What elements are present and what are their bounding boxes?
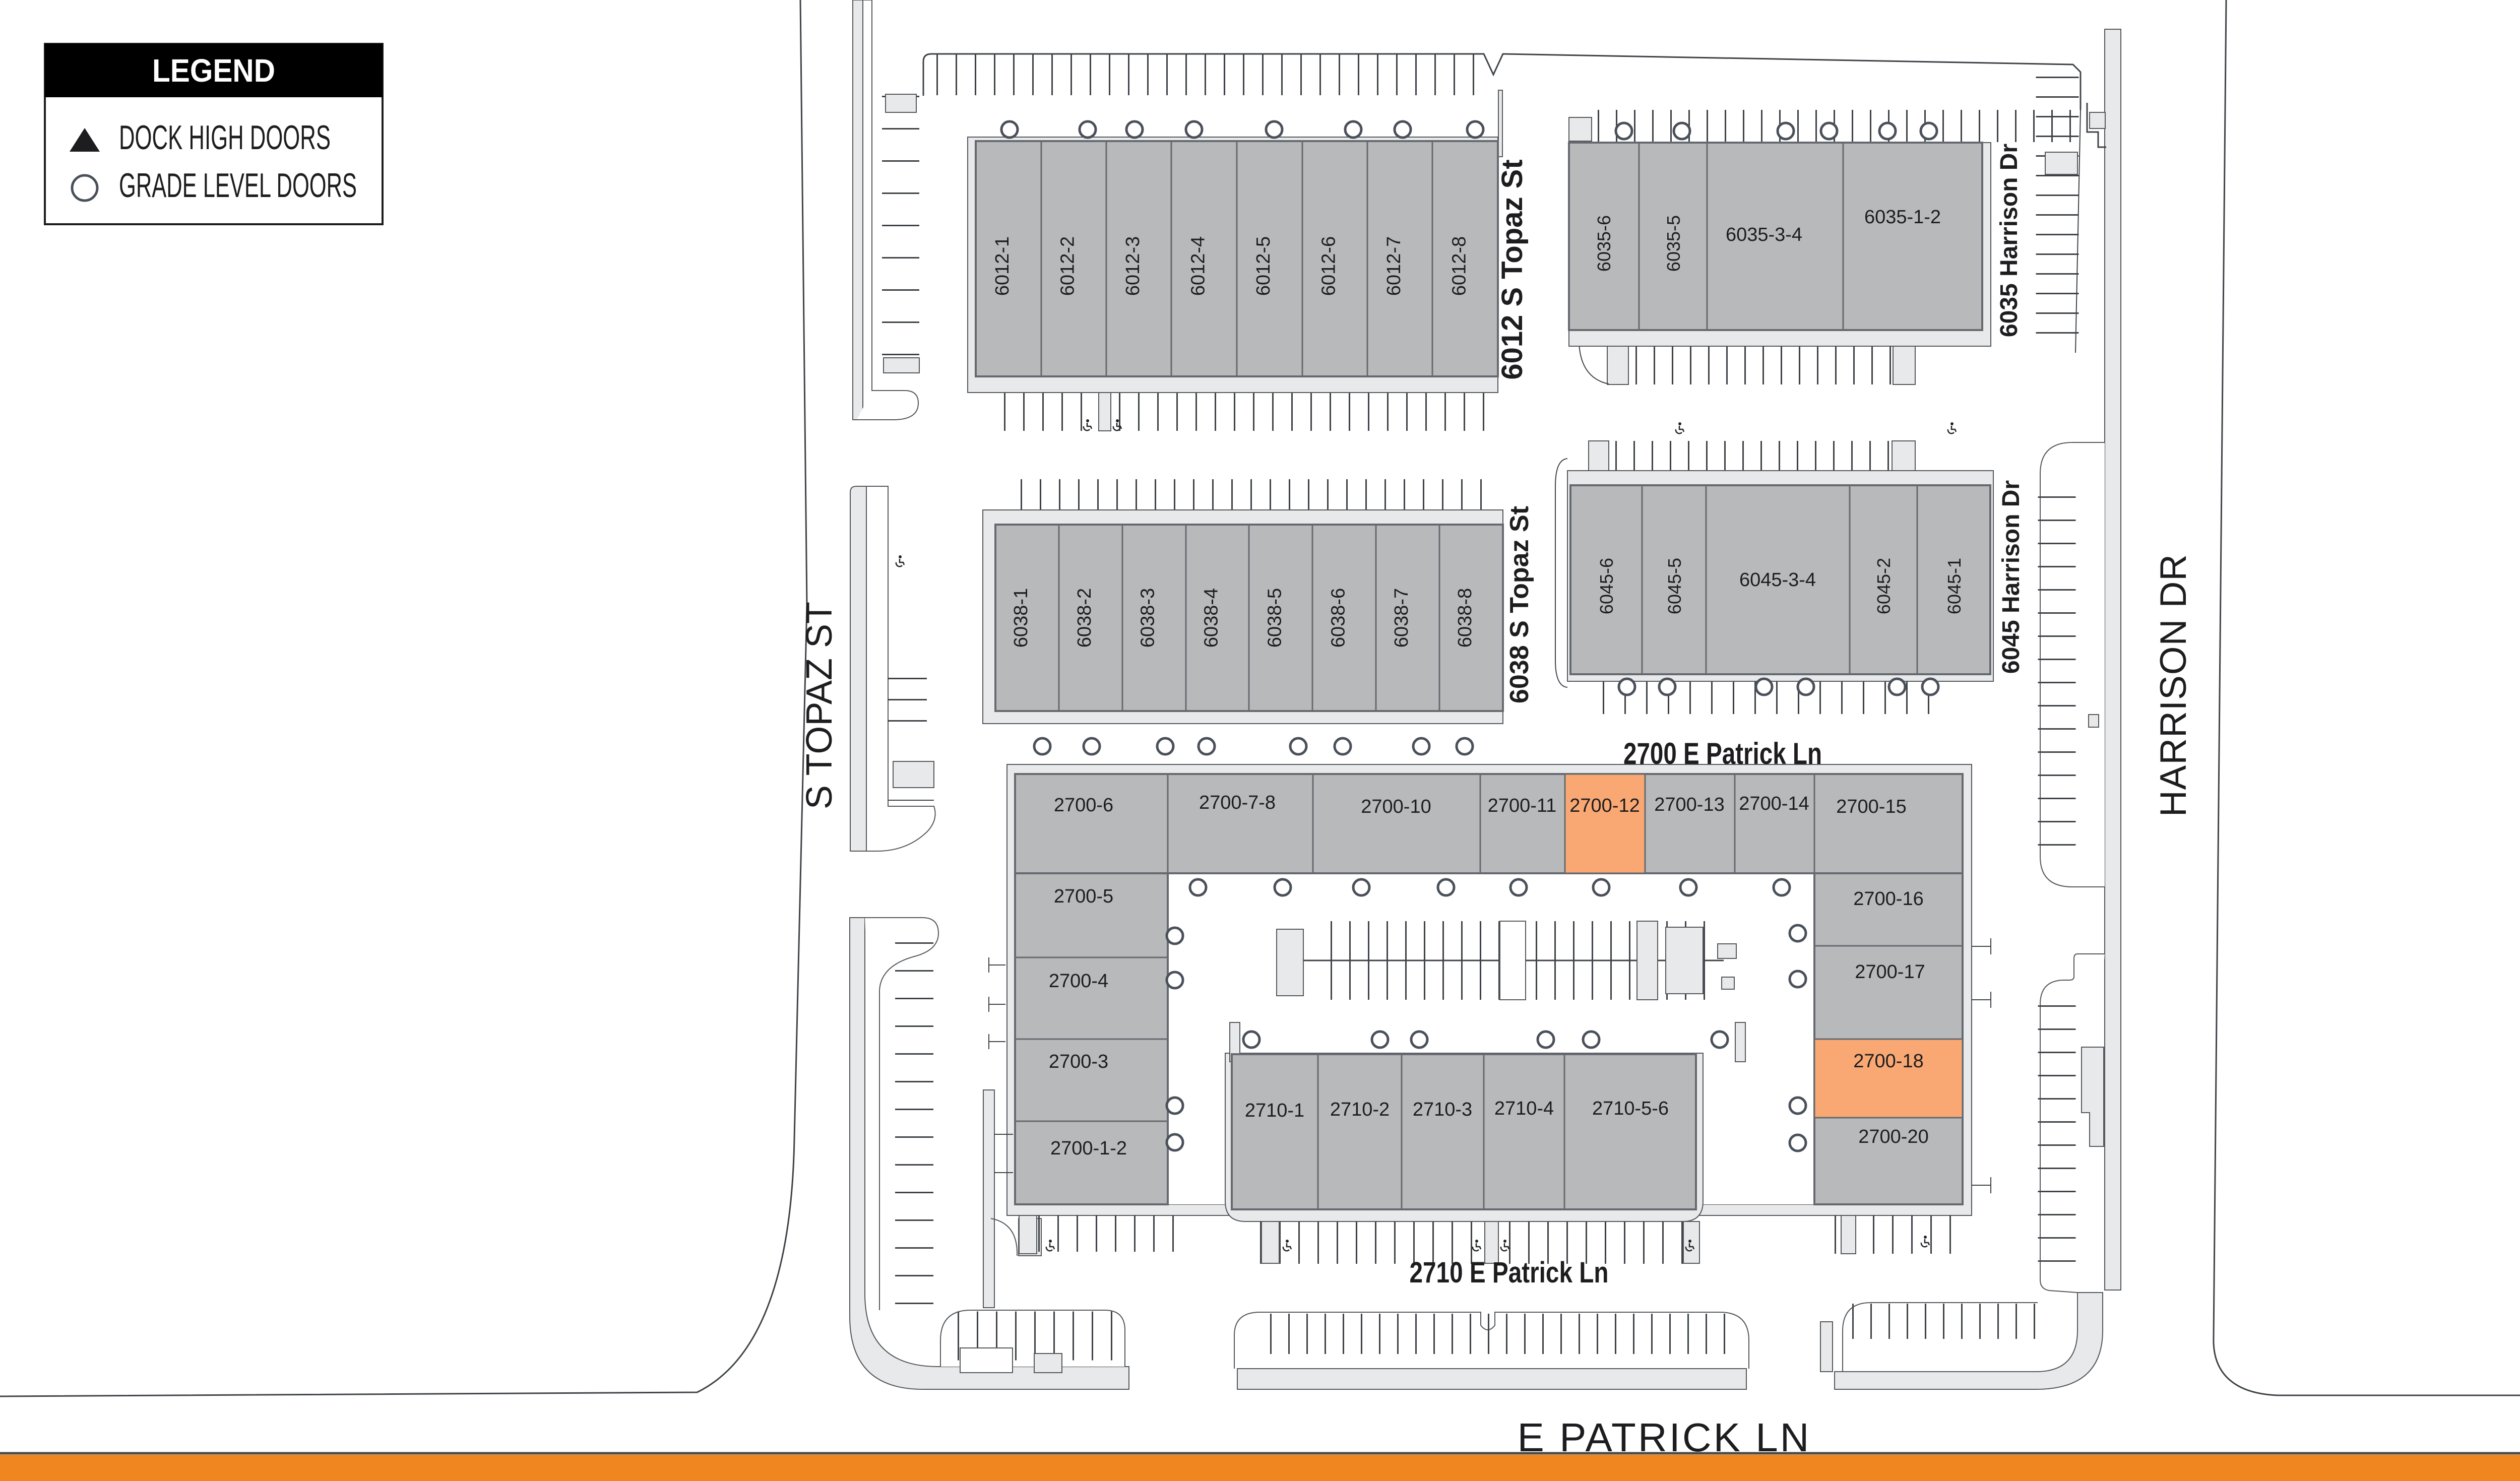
svg-text:2700-15: 2700-15 <box>1836 796 1906 817</box>
svg-text:6012-5: 6012-5 <box>1253 236 1274 296</box>
svg-text:6012-7: 6012-7 <box>1383 236 1405 296</box>
svg-text:6035-3-4: 6035-3-4 <box>1726 224 1802 245</box>
svg-text:DOCK HIGH DOORS: DOCK HIGH DOORS <box>119 118 331 157</box>
svg-text:2700-7-8: 2700-7-8 <box>1199 792 1276 813</box>
svg-text:2700-11: 2700-11 <box>1488 795 1557 816</box>
svg-text:2700-12: 2700-12 <box>1569 795 1640 816</box>
svg-text:2700-1-2: 2700-1-2 <box>1050 1138 1127 1159</box>
svg-text:6035-6: 6035-6 <box>1594 215 1614 272</box>
svg-text:2700 E Patrick Ln: 2700 E Patrick Ln <box>1623 737 1822 770</box>
svg-text:6038-1: 6038-1 <box>1011 588 1032 648</box>
svg-text:6038-6: 6038-6 <box>1328 588 1349 648</box>
svg-text:2710-4: 2710-4 <box>1494 1098 1554 1119</box>
svg-text:6012-4: 6012-4 <box>1187 236 1209 296</box>
svg-text:6038-2: 6038-2 <box>1074 588 1095 648</box>
svg-text:2700-4: 2700-4 <box>1049 971 1108 992</box>
svg-text:2700-16: 2700-16 <box>1853 888 1923 910</box>
svg-text:2710 E Patrick Ln: 2710 E Patrick Ln <box>1410 1256 1609 1289</box>
svg-text:6045-5: 6045-5 <box>1664 558 1685 614</box>
svg-text:2710-2: 2710-2 <box>1330 1099 1390 1120</box>
svg-text:6038-4: 6038-4 <box>1201 588 1222 648</box>
svg-text:6012-6: 6012-6 <box>1318 236 1339 296</box>
svg-text:6035-1-2: 6035-1-2 <box>1864 207 1941 228</box>
svg-text:6038-8: 6038-8 <box>1455 588 1476 648</box>
svg-text:6035 Harrison Dr: 6035 Harrison Dr <box>1996 144 2023 337</box>
svg-text:2700-17: 2700-17 <box>1855 961 1925 983</box>
svg-text:6038-3: 6038-3 <box>1138 588 1159 648</box>
svg-text:2710-5-6: 2710-5-6 <box>1592 1098 1669 1119</box>
svg-text:6038 S Topaz St: 6038 S Topaz St <box>1505 506 1534 703</box>
svg-text:6045-2: 6045-2 <box>1873 558 1894 614</box>
svg-text:2700-20: 2700-20 <box>1858 1126 1928 1147</box>
svg-text:2700-13: 2700-13 <box>1654 794 1724 815</box>
svg-text:6012-2: 6012-2 <box>1057 236 1078 296</box>
svg-text:HARRISON DR: HARRISON DR <box>2153 554 2194 817</box>
svg-text:S TOPAZ ST: S TOPAZ ST <box>799 602 840 809</box>
svg-text:6045-6: 6045-6 <box>1596 558 1617 614</box>
svg-text:6045-1: 6045-1 <box>1944 558 1965 614</box>
svg-text:2710-3: 2710-3 <box>1413 1099 1472 1120</box>
svg-text:2700-6: 2700-6 <box>1054 795 1113 816</box>
svg-text:6038-5: 6038-5 <box>1264 588 1285 648</box>
svg-text:6035-5: 6035-5 <box>1663 215 1684 272</box>
svg-text:2700-18: 2700-18 <box>1853 1051 1923 1072</box>
svg-text:LEGEND: LEGEND <box>152 52 275 89</box>
svg-text:2700-10: 2700-10 <box>1361 796 1431 817</box>
svg-text:2700-5: 2700-5 <box>1054 886 1113 907</box>
svg-text:2700-14: 2700-14 <box>1739 793 1809 814</box>
svg-text:6012-8: 6012-8 <box>1448 236 1470 296</box>
svg-text:6045 Harrison Dr: 6045 Harrison Dr <box>1998 480 2025 674</box>
svg-text:2710-1: 2710-1 <box>1245 1100 1304 1121</box>
svg-text:6012 S Topaz St: 6012 S Topaz St <box>1496 159 1529 379</box>
svg-text:2700-3: 2700-3 <box>1049 1051 1108 1072</box>
svg-text:6012-3: 6012-3 <box>1122 236 1144 296</box>
svg-text:6038-7: 6038-7 <box>1391 588 1412 648</box>
svg-text:6045-3-4: 6045-3-4 <box>1739 569 1816 591</box>
svg-text:6012-1: 6012-1 <box>992 236 1013 296</box>
svg-text:GRADE LEVEL DOORS: GRADE LEVEL DOORS <box>119 166 357 205</box>
